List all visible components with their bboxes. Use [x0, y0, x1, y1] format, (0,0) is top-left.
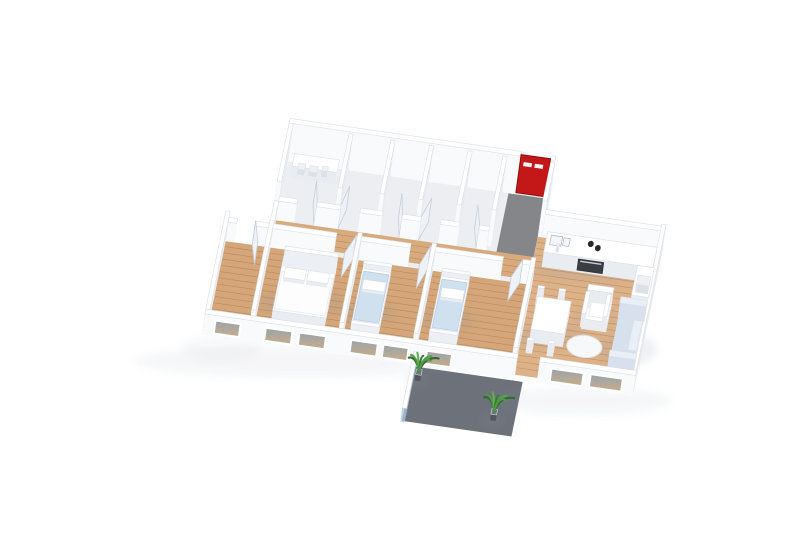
kitchen-sink [550, 235, 563, 246]
window-glass [382, 345, 409, 362]
corridor-back-wall-5 [438, 220, 461, 246]
double-bed-pillow-2 [306, 271, 330, 288]
window-far-left-room [214, 321, 241, 338]
corridor-back-wall-4 [399, 214, 422, 240]
armchair-cushion [589, 302, 606, 318]
window-glass [214, 321, 241, 338]
floor-plan-3d-render [0, 0, 800, 533]
window-glass [264, 328, 292, 345]
shelf-item-2 [308, 166, 318, 177]
building-front-shadow-right [491, 387, 671, 415]
window-bedroom-2-a [350, 340, 378, 357]
window-glass [350, 340, 378, 357]
corridor-back-wall-2 [314, 202, 341, 229]
floor-plan-page: 3D rendered apartment floor plan with re… [0, 0, 800, 533]
corridor-back-wall-1 [276, 197, 298, 223]
window-bedroom-1-a [264, 328, 292, 345]
sofa-arm-top [618, 297, 648, 322]
corridor-back-wall-3 [357, 208, 383, 235]
window-glass [298, 333, 326, 350]
double-bed-pillow-1 [283, 267, 307, 284]
kitchen-sink-drainer [562, 238, 570, 247]
coffee-table-oval [567, 335, 602, 357]
window-bedroom-2-b [382, 345, 409, 362]
window-bedroom-1-b [298, 333, 326, 350]
